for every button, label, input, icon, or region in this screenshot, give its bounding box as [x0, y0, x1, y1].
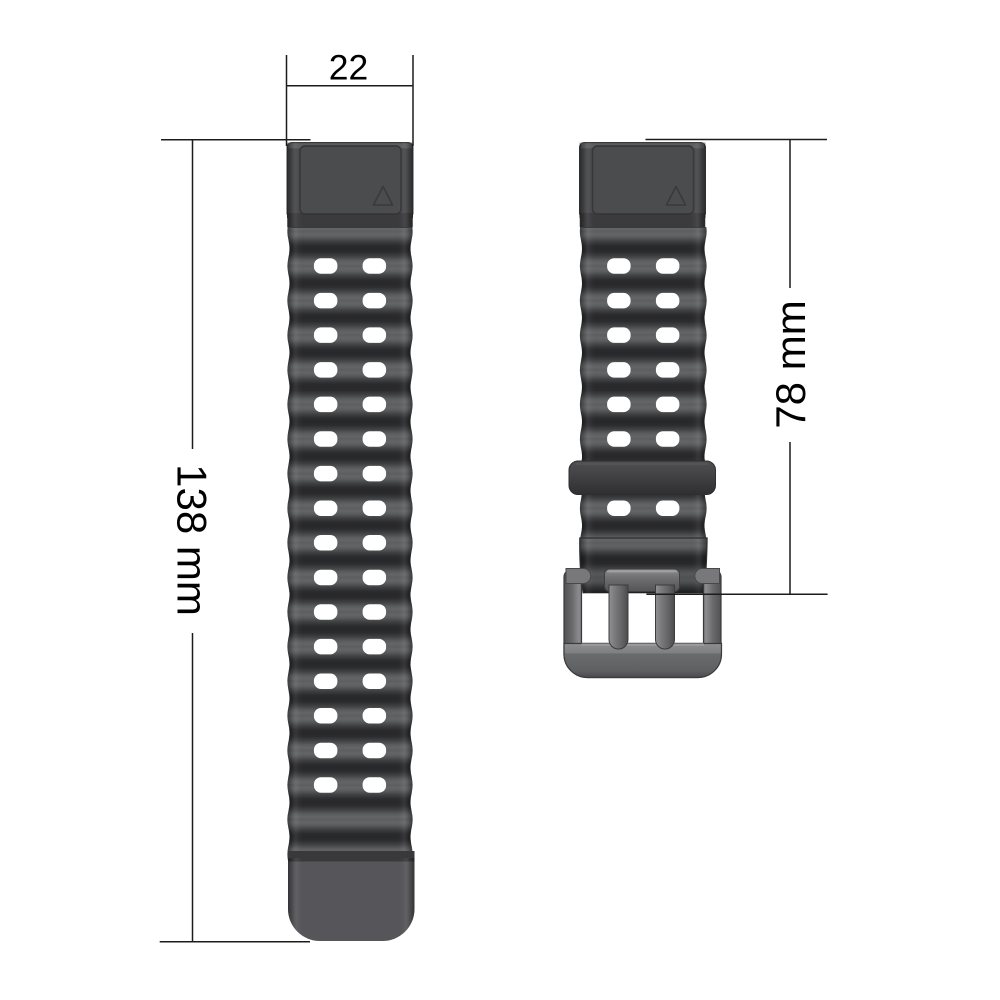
svg-text:138 mm: 138 mm: [169, 464, 216, 616]
svg-text:22: 22: [329, 48, 369, 88]
svg-text:78 mm: 78 mm: [767, 300, 814, 428]
